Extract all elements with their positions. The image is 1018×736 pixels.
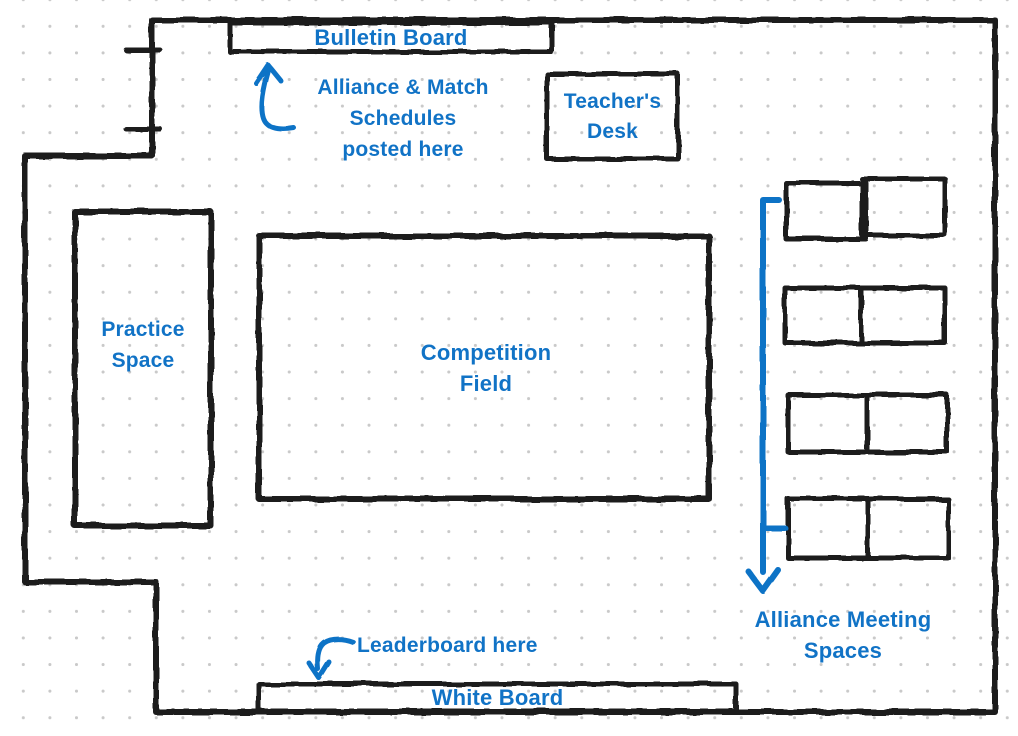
teachers-desk-label: Teacher's Desk [547,74,678,159]
alliance-desk-pair-4 [788,499,948,558]
floorplan-canvas: Bulletin Board Alliance & Match Schedule… [0,0,1018,736]
alliance-desk-pair-2 [785,288,945,343]
teachers-desk-label-line2: Desk [547,117,678,147]
teachers-desk-label-line1: Teacher's [547,87,678,117]
white-board-label: White Board [259,684,736,711]
alliance-meeting-label-line2: Spaces [715,635,971,666]
practice-space-label: Practice Space [75,314,211,376]
schedules-note: Alliance & Match Schedules posted here [287,72,519,165]
schedules-note-line3: posted here [287,134,519,165]
bulletin-board-label: Bulletin Board [231,23,551,52]
alliance-meeting-label-line1: Alliance Meeting [715,604,971,635]
alliance-desk-pair-3 [788,395,947,452]
down-arrow-icon [748,200,785,591]
hook-down-arrow-icon [309,639,353,678]
competition-field-label-line1: Competition [334,337,638,368]
practice-space-label-line2: Space [75,345,211,376]
competition-field-label-line2: Field [334,368,638,399]
alliance-desk-pair-1 [786,179,945,239]
schedules-note-line2: Schedules [287,103,519,134]
leaderboard-note: Leaderboard here [357,632,538,659]
schedules-note-line1: Alliance & Match [287,72,519,103]
practice-space-label-line1: Practice [75,314,211,345]
competition-field-label: Competition Field [334,337,638,399]
alliance-meeting-spaces-label: Alliance Meeting Spaces [715,604,971,666]
